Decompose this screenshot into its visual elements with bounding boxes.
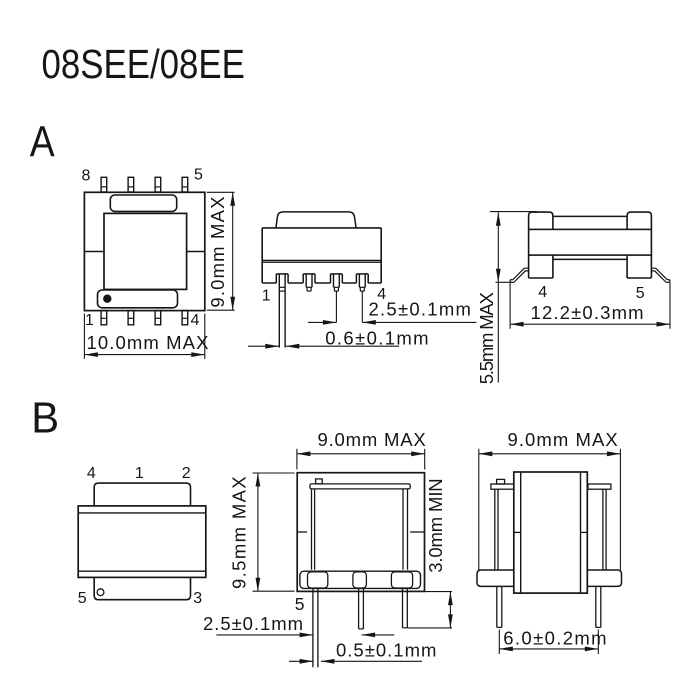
svg-text:5: 5 <box>194 167 203 184</box>
svg-text:2.5±0.1mm: 2.5±0.1mm <box>369 299 473 320</box>
svg-text:5: 5 <box>78 590 87 607</box>
svg-text:A: A <box>30 116 56 166</box>
svg-text:4: 4 <box>191 312 200 329</box>
svg-text:1: 1 <box>135 465 144 482</box>
svg-text:5: 5 <box>636 285 645 302</box>
svg-text:8: 8 <box>82 167 91 184</box>
svg-text:12.2±0.3mm: 12.2±0.3mm <box>531 302 645 323</box>
svg-text:10.0mm MAX: 10.0mm MAX <box>87 332 210 353</box>
svg-text:0.6±0.1mm: 0.6±0.1mm <box>325 328 430 349</box>
svg-text:9.5mm MAX: 9.5mm MAX <box>228 475 249 589</box>
svg-text:3: 3 <box>193 590 202 607</box>
svg-text:5: 5 <box>295 594 305 614</box>
svg-text:08SEE/08EE: 08SEE/08EE <box>42 42 245 87</box>
svg-text:9.0mm MAX: 9.0mm MAX <box>508 429 619 450</box>
svg-text:B: B <box>31 393 59 442</box>
svg-text:2.5±0.1mm: 2.5±0.1mm <box>203 613 304 634</box>
svg-text:1: 1 <box>262 287 271 304</box>
svg-text:3.0mm MIN: 3.0mm MIN <box>425 478 446 572</box>
svg-text:0.5±0.1mm: 0.5±0.1mm <box>336 640 437 661</box>
svg-text:1: 1 <box>85 312 94 329</box>
svg-text:6.0±0.2mm: 6.0±0.2mm <box>503 628 608 649</box>
svg-text:9.0mm MAX: 9.0mm MAX <box>318 429 427 450</box>
svg-text:4: 4 <box>538 284 547 301</box>
svg-text:4: 4 <box>87 465 96 482</box>
svg-text:2: 2 <box>182 465 191 482</box>
svg-text:9.0mm MAX: 9.0mm MAX <box>207 195 228 307</box>
svg-text:5.5mm MAX: 5.5mm MAX <box>476 292 497 384</box>
